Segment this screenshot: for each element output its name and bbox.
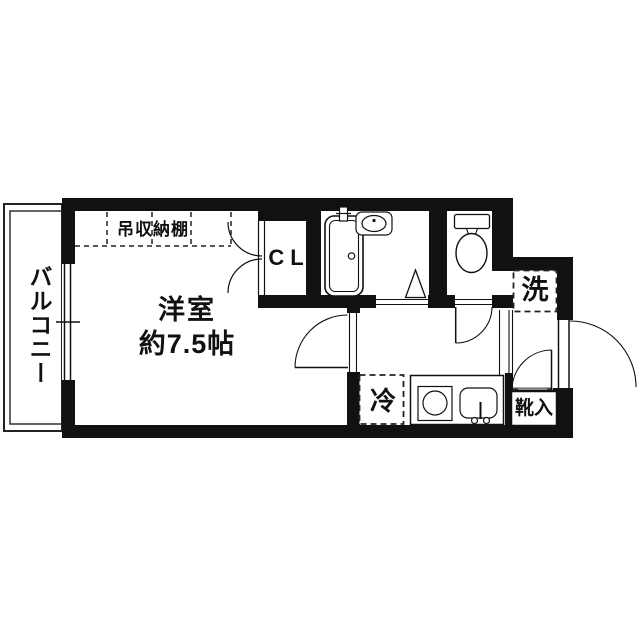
entrance-door-arc (570, 321, 636, 387)
closet-door-arc-lower (228, 259, 262, 293)
wall-left-upper (62, 198, 75, 264)
basin-tap-icon (372, 219, 375, 222)
stove-burner-icon (423, 391, 447, 415)
balcony-label: バルコニー (20, 263, 50, 387)
room-name-label: 洋室 (107, 297, 267, 324)
room-size-label: 約7.5帖 (102, 331, 272, 358)
entrance-door (559, 318, 637, 390)
wall-top (62, 198, 513, 211)
shoe-cabinet-label: 靴入 (511, 399, 557, 418)
closet-label: CL (260, 247, 312, 269)
wall-bath-toilet (429, 211, 447, 298)
wall-mid-band-right (492, 295, 513, 308)
balcony-window (56, 264, 80, 380)
wall-toilet-right (492, 211, 513, 271)
wall-outer-right-upper (557, 257, 573, 320)
genkan-door (512, 350, 552, 390)
room-door-arc (295, 315, 348, 368)
toilet-tank (455, 215, 490, 229)
wall-room-right-lower (347, 372, 360, 425)
toilet (455, 215, 490, 273)
toilet-door-arc (456, 307, 492, 343)
refrigerator-space-label: 冷 (360, 388, 406, 414)
kitchen-sink (460, 388, 497, 418)
bathroom (325, 207, 426, 298)
wash-basin-bowl (362, 216, 386, 232)
floor-plan: バルコニー 洋室 約7.5帖 吊収納棚 CL 洗 冷 靴入 (0, 0, 640, 640)
closet-door-arc-upper (228, 222, 262, 256)
kitchen (411, 376, 504, 425)
toilet-bowl (456, 234, 487, 273)
hanging-shelf-label: 吊収納棚 (75, 221, 231, 238)
toilet-door (456, 307, 492, 343)
floor-plan-linework (0, 0, 640, 640)
folding-door-icon (406, 270, 426, 298)
genkan-door-arc (512, 350, 552, 390)
bathtub-drain-icon (348, 253, 354, 259)
laundry-space-label: 洗 (513, 277, 557, 304)
wall-bottom (62, 425, 573, 438)
room-kitchen-door (295, 313, 357, 372)
wall-room-right-upper (347, 295, 360, 313)
corridor-frame (500, 310, 513, 376)
